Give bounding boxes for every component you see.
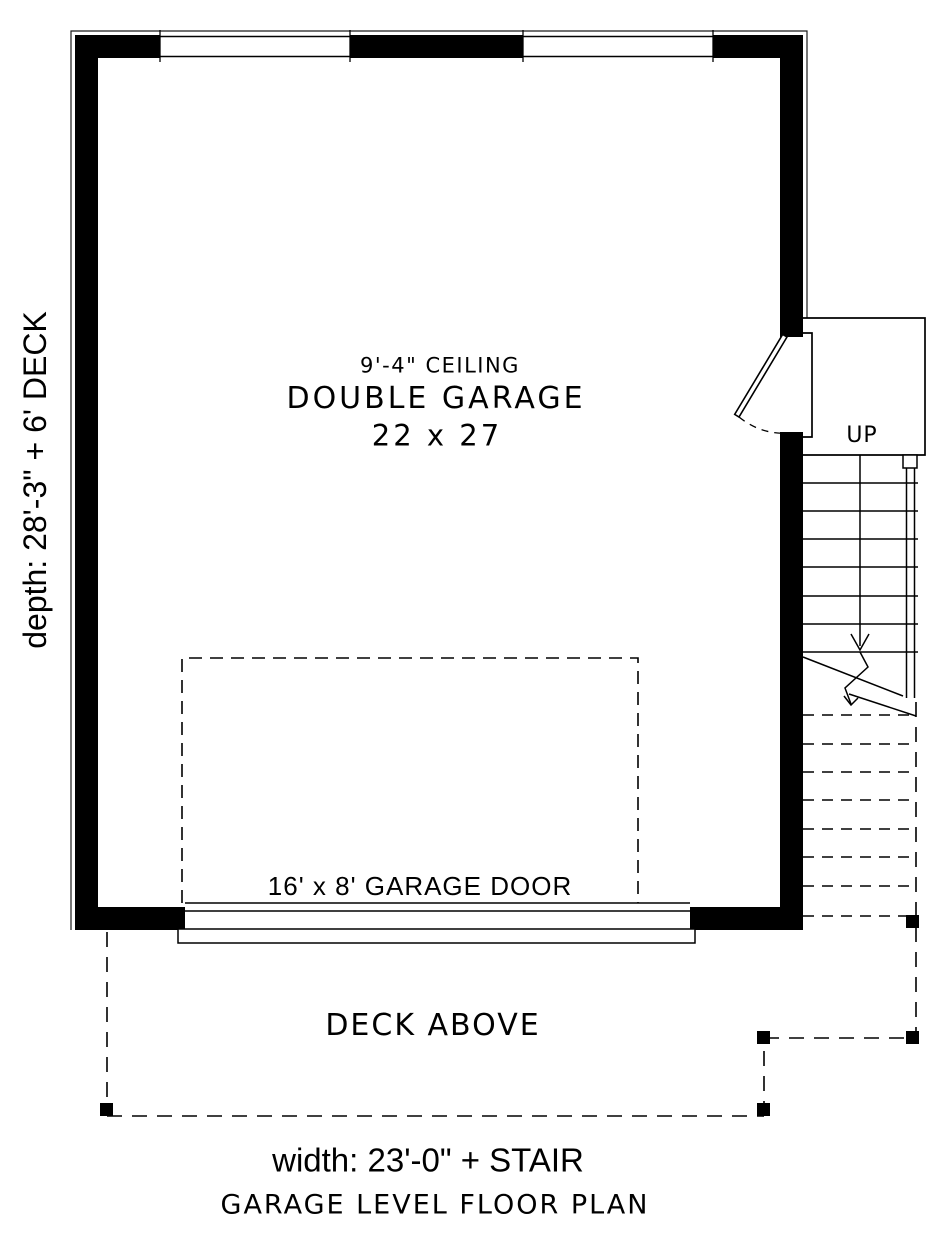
garage-door-label: 16' x 8' GARAGE DOOR <box>268 873 572 899</box>
width-dimension-label: width: 23'-0" + STAIR <box>272 1144 584 1177</box>
door-leaf <box>735 334 787 417</box>
wall-right-upper <box>780 35 803 337</box>
depth-dimension-label: depth: 28'-3" + 6' DECK <box>19 311 51 649</box>
garage-door-overhead-outline <box>182 658 638 903</box>
stair-break-line <box>803 652 916 716</box>
exterior-walls <box>75 35 803 930</box>
wall-left <box>75 35 98 930</box>
plan-title: GARAGE LEVEL FLOOR PLAN <box>221 1192 650 1219</box>
wall-bottom-right <box>690 907 803 930</box>
stair-treads-hidden <box>803 715 916 916</box>
stair <box>803 455 918 916</box>
window <box>154 30 356 62</box>
floor-plan: 9'-4" CEILING DOUBLE GARAGE 22 x 27 16' … <box>0 0 947 1235</box>
room-name-label: DOUBLE GARAGE <box>286 384 585 414</box>
wall-top-middle <box>350 35 523 58</box>
room-size-label: 22 x 27 <box>372 422 502 451</box>
ceiling-height-label: 9'-4" CEILING <box>360 356 520 377</box>
garage-door-opening <box>185 903 690 911</box>
stair-up-label: UP <box>846 425 877 447</box>
door-swing-arc <box>739 417 799 433</box>
deck-corner-marker <box>757 1031 770 1044</box>
stair-newel-post <box>903 455 917 468</box>
entry-door <box>735 334 799 433</box>
wall-right-lower <box>780 432 803 930</box>
deck-corner-marker <box>757 1103 770 1116</box>
garage-door-slab <box>178 929 695 943</box>
stair-direction-arrow <box>851 455 869 650</box>
deck-above-label: DECK ABOVE <box>325 1011 540 1041</box>
stair-railing <box>907 468 915 698</box>
deck-corner-marker <box>906 915 919 928</box>
deck-corner-marker <box>100 1103 113 1116</box>
window <box>517 30 719 62</box>
floor-plan-drawing <box>0 0 947 1235</box>
wall-bottom-left <box>75 907 185 930</box>
deck-corner-marker <box>906 1031 919 1044</box>
